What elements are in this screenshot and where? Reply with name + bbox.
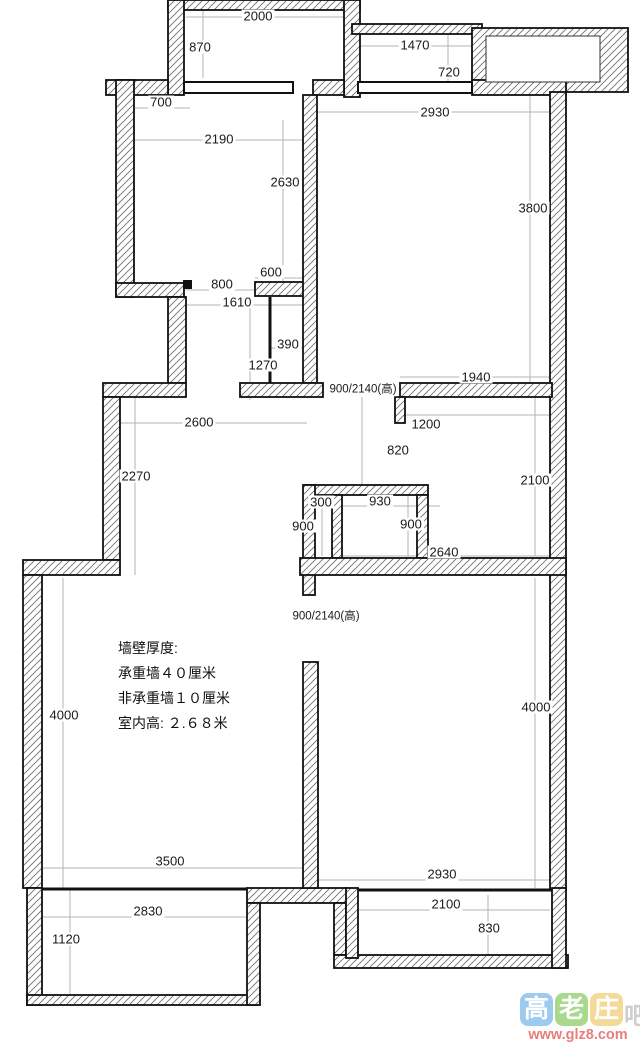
dimension-label: 300 [308,496,334,509]
dimension-label: 2630 [269,176,302,189]
dimension-label: 830 [476,922,502,935]
dimension-label: 3500 [154,855,187,868]
ac-platform-opening [486,36,600,82]
dimension-label: 4000 [48,709,81,722]
wall-thickness-note-line: 承重墙４０厘米 [118,666,216,680]
dimension-label: 820 [385,444,411,457]
dimension-label: 1120 [50,933,82,946]
floor-plan: 2000870147072070021902930263038006008001… [0,0,640,1046]
dimension-label: 1940 [460,371,493,384]
door-size-label: 900/2140(高) [328,384,397,396]
dimension-label: 600 [258,266,284,279]
floor-plan-drawing [0,0,640,1046]
dimension-label: 4000 [520,701,553,714]
wall-thickness-note-line: 室内高: ２.６８米 [118,716,228,730]
dimension-label: 900 [398,518,424,531]
dimension-label: 390 [275,338,301,351]
dimension-label: 2100 [519,474,552,487]
dimension-label: 2000 [242,10,275,23]
dimension-label: 2600 [183,416,216,429]
door-post [183,280,192,289]
dimension-label: 2640 [428,546,461,559]
watermark-tile: 老 [555,993,588,1026]
dimension-label: 900 [290,520,316,533]
dimension-label: 870 [187,41,213,54]
watermark-tile: 高 [520,993,553,1026]
dimension-label: 700 [148,96,174,109]
wall-thickness-note-line: 非承重墙１０厘米 [118,691,230,705]
dimension-label: 2270 [120,470,153,483]
dimension-label: 800 [209,278,235,291]
dimension-label: 3800 [517,202,550,215]
dimension-label: 1270 [247,359,280,372]
dimension-label: 2930 [419,106,452,119]
dimension-label: 720 [436,66,462,79]
dimension-label: 1610 [221,296,254,309]
dimension-label: 1470 [399,39,432,52]
door-size-label: 900/2140(高) [291,611,360,623]
dimension-label: 2190 [203,133,236,146]
dimension-label: 2100 [430,898,463,911]
watermark-tile: 庄 [590,993,623,1026]
dimension-label: 2930 [426,868,459,881]
wall-thickness-note-line: 墙壁厚度: [118,641,178,655]
watermark: 庄老高 吧 www.glz8.com [516,988,640,1044]
dimension-label: 2830 [132,905,165,918]
watermark-char: 吧 [624,1005,640,1029]
watermark-url: www.glz8.com [518,1028,638,1043]
dimension-label: 930 [367,495,393,508]
dimension-label: 1200 [410,418,443,431]
